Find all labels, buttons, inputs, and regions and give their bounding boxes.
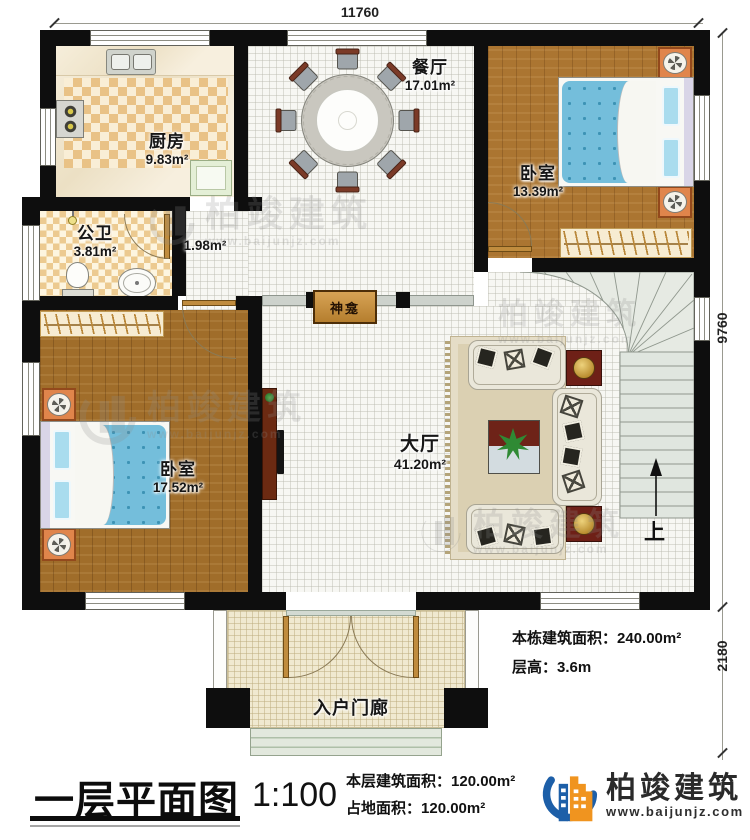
plant-icon [497,428,529,460]
window [22,225,40,301]
tv [277,430,284,474]
wardrobe [40,311,164,337]
shrine: 神龛 [313,290,377,324]
room-area: 13.39m² [493,184,583,200]
plant-icon [265,393,274,402]
pillow [532,526,553,547]
floor-plan-sheet: 上 [0,0,750,840]
porch-label: 入户门廊 [276,698,426,719]
wall [474,46,488,272]
room-name: 卧室 [133,460,223,480]
wall [248,296,262,592]
floor-height-value: 3.6m [557,659,591,676]
pillow [560,395,584,419]
pillow [475,346,498,369]
pillow [503,523,526,546]
room-name: 入户门廊 [276,698,426,719]
porch-rail-right [465,610,479,690]
nightstand [42,388,76,421]
wall [234,197,262,211]
headboard [41,422,50,528]
dimension-line [55,23,703,24]
title-underline [30,816,240,821]
wall [234,46,248,197]
wall [532,258,710,272]
window [540,592,640,610]
room-area: 17.52m² [133,480,223,496]
stove [56,100,84,138]
room-name: 厨房 [112,132,222,152]
dimension-top: 11760 [315,4,405,20]
stair-straight-run [620,352,694,518]
pillow [53,480,71,520]
blanket [75,425,114,525]
pillow [53,430,71,470]
room-area: 1.98m² [165,238,245,254]
land-area-value: 120.00m² [421,800,485,817]
porch-column [444,688,488,728]
area-summary: 本层建筑面积：120.00m² 占地面积：120.00m² [346,768,515,822]
headboard [684,78,693,186]
bedroom-left-label: 卧室 17.52m² [133,460,223,496]
dining-label: 餐厅 17.01m² [385,58,475,94]
window [22,362,40,436]
hall-label: 大厅 41.20m² [372,434,468,473]
brand-logo-icon [540,764,598,828]
room-area: 17.01m² [385,78,475,94]
brand-logo: 柏竣建筑 www.baijunjz.com [540,764,744,828]
brand-name: 柏竣建筑 [606,773,744,805]
nightstand [658,186,692,218]
nightstand [42,528,76,561]
blanket [617,81,656,183]
window [694,95,710,181]
window [287,30,427,46]
porch-rail-left [213,610,227,690]
bathroom-sink [118,268,156,298]
wall [40,197,190,211]
room-name: 餐厅 [385,58,475,78]
room-area: 41.20m² [372,456,468,473]
window [694,297,710,341]
wall [474,258,488,272]
building-area-value: 240.00m² [617,630,681,647]
shrine-label: 神龛 [330,298,360,317]
pillow [662,86,680,126]
floor-height-label: 层高： [512,659,557,676]
pillow [562,470,586,494]
room-name: 大厅 [372,434,468,456]
side-table [566,506,602,542]
passage-label: 1.98m² [165,238,245,254]
window [90,30,210,46]
wall [22,296,178,310]
entry-steps [250,728,442,756]
building-area-label: 本栋建筑面积： [512,630,617,647]
kitchen-label: 厨房 9.83m² [112,132,222,168]
entry-door-right [413,616,419,678]
wall [396,292,410,308]
land-area-label: 占地面积： [346,800,421,817]
window [85,592,185,610]
wardrobe [560,228,692,258]
floor-area-label: 本层建筑面积： [346,773,451,790]
brand-website: www.baijunjz.com [606,804,744,819]
pillow [530,345,554,369]
kitchen-sink [106,49,156,75]
stair-up-label: 上 [644,516,665,546]
toilet [62,262,94,298]
room-area: 3.81m² [50,244,140,260]
drawing-scale: 1:100 [252,776,337,815]
side-table [566,350,602,386]
pillow [503,348,525,370]
room-name: 卧室 [493,164,583,184]
pillow [662,138,680,178]
burner [64,120,77,133]
window [40,108,56,166]
tv-cabinet [262,388,277,500]
toilet-bowl [66,262,89,288]
room-name: 公卫 [50,224,140,244]
floor-area-value: 120.00m² [451,773,515,790]
pillow [562,420,585,443]
sofa-bottom [466,504,564,554]
bathroom-label: 公卫 3.81m² [50,224,140,260]
bedroom-top-right-door [488,246,532,252]
burner [64,105,77,118]
porch-column [206,688,250,728]
sofa-right [552,388,602,506]
pillow [475,525,499,549]
title-underline-thin [30,825,240,827]
sofa-top [468,340,566,390]
sink-basin [133,54,152,70]
building-info: 本栋建筑面积：240.00m² 层高：3.6m [512,624,681,682]
sink-basin [111,54,130,70]
pillow [560,445,582,467]
room-area: 9.83m² [112,152,222,168]
dimension-right-lower: 2180 [714,626,730,686]
bedroom-top-right-label: 卧室 13.39m² [493,164,583,200]
dimension-right-upper: 9760 [714,298,730,358]
nightstand [658,47,692,79]
